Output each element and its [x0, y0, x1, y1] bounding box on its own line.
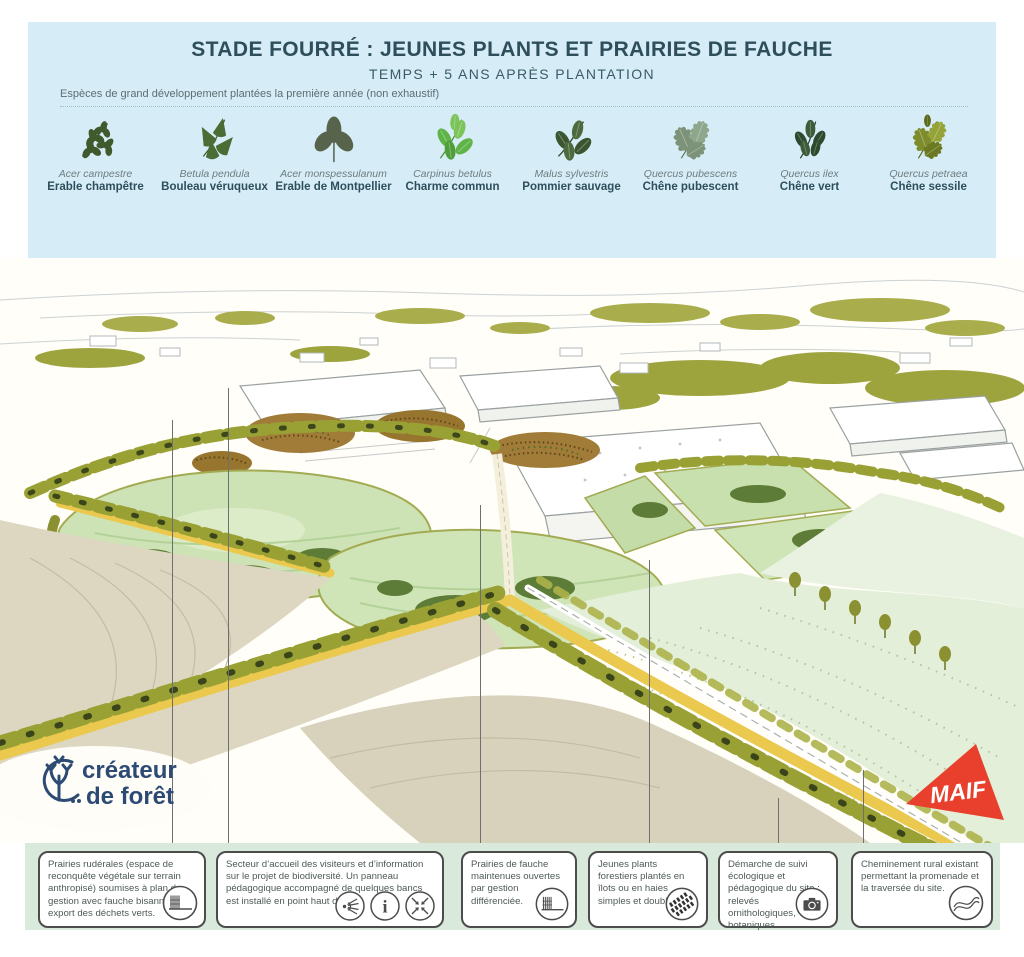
species-latin: Acer campestre — [36, 168, 155, 180]
species-item: Carpinus betulus Charme commun — [393, 110, 512, 193]
montpellier-maple-leaf-icon — [305, 112, 363, 166]
page-title: STADE FOURRÉ : JEUNES PLANTS ET PRAIRIES… — [28, 38, 996, 62]
mowing-icon — [160, 883, 200, 923]
creator-logo-line1: créateur — [82, 757, 177, 784]
species-french: Chêne vert — [750, 181, 869, 193]
hornbeam-leaf-icon — [424, 112, 482, 166]
viewpoint-icon — [334, 890, 366, 922]
species-latin: Quercus petraea — [869, 168, 988, 180]
winding-path-icon — [946, 883, 986, 923]
species-latin: Betula pendula — [155, 168, 274, 180]
species-french: Erable champêtre — [36, 181, 155, 193]
species-item: Quercus petraea Chêne sessile — [869, 110, 988, 193]
creator-logo-line2: de forêt — [86, 783, 174, 810]
species-latin: Quercus pubescens — [631, 168, 750, 180]
species-item: Quercus ilex Chêne vert — [750, 110, 869, 193]
species-french: Bouleau véruqueux — [155, 181, 274, 193]
species-french: Pommier sauvage — [512, 181, 631, 193]
species-item: Quercus pubescens Chêne pubescent — [631, 110, 750, 193]
sapling-circle-icon — [44, 757, 78, 800]
annotation-card: Prairies de fauche maintenues ouvertes p… — [461, 851, 577, 928]
annotation-card: Démarche de suivi écologique et pédagogi… — [718, 851, 838, 928]
leader-line — [863, 770, 864, 851]
species-latin: Malus sylvestris — [512, 168, 631, 180]
holm-oak-leaf-icon — [781, 112, 839, 166]
crab-apple-leaf-icon — [543, 112, 601, 166]
legend-divider — [60, 106, 968, 107]
svg-text:i: i — [382, 897, 387, 917]
annotation-card: Jeunes plants forestiers plantés en îlot… — [588, 851, 708, 928]
species-legend: Acer campestre Erable champêtre Betula p… — [36, 110, 988, 193]
leader-line — [649, 560, 650, 851]
leader-line — [480, 505, 481, 851]
species-french: Erable de Montpellier — [274, 181, 393, 193]
maif-logo: MAIF — [900, 738, 1015, 828]
species-french: Chêne pubescent — [631, 181, 750, 193]
species-french: Chêne sessile — [869, 181, 988, 193]
annotation-card: Cheminement rural existant permettant la… — [851, 851, 993, 928]
meeting-point-icon — [404, 890, 436, 922]
species-item: Acer campestre Erable champêtre — [36, 110, 155, 193]
createur-de-foret-logo: créateur de forêt — [26, 748, 226, 818]
mowing-icon — [533, 885, 571, 923]
species-french: Charme commun — [393, 181, 512, 193]
field-maple-leaf-icon — [67, 112, 125, 166]
camera-icon — [793, 885, 831, 923]
hedgerow-stripes-icon — [663, 885, 701, 923]
info-icon: i — [369, 890, 401, 922]
leader-line — [228, 388, 229, 851]
annotation-card: Prairies rudérales (espace de reconquête… — [38, 851, 206, 928]
species-item: Betula pendula Bouleau véruqueux — [155, 110, 274, 193]
page-subtitle: TEMPS + 5 ANS APRÈS PLANTATION — [28, 66, 996, 82]
header-panel: STADE FOURRÉ : JEUNES PLANTS ET PRAIRIES… — [28, 22, 996, 258]
species-latin: Quercus ilex — [750, 168, 869, 180]
sessile-oak-leaf-icon — [900, 112, 958, 166]
legend-caption: Espèces de grand développement plantées … — [60, 88, 439, 100]
annotation-card: Secteur d’accueil des visiteurs et d’inf… — [216, 851, 444, 928]
species-latin: Carpinus betulus — [393, 168, 512, 180]
birch-leaf-icon — [186, 112, 244, 166]
downy-oak-leaf-icon — [662, 112, 720, 166]
species-item: Acer monspessulanum Erable de Montpellie… — [274, 110, 393, 193]
species-item: Malus sylvestris Pommier sauvage — [512, 110, 631, 193]
species-latin: Acer monspessulanum — [274, 168, 393, 180]
